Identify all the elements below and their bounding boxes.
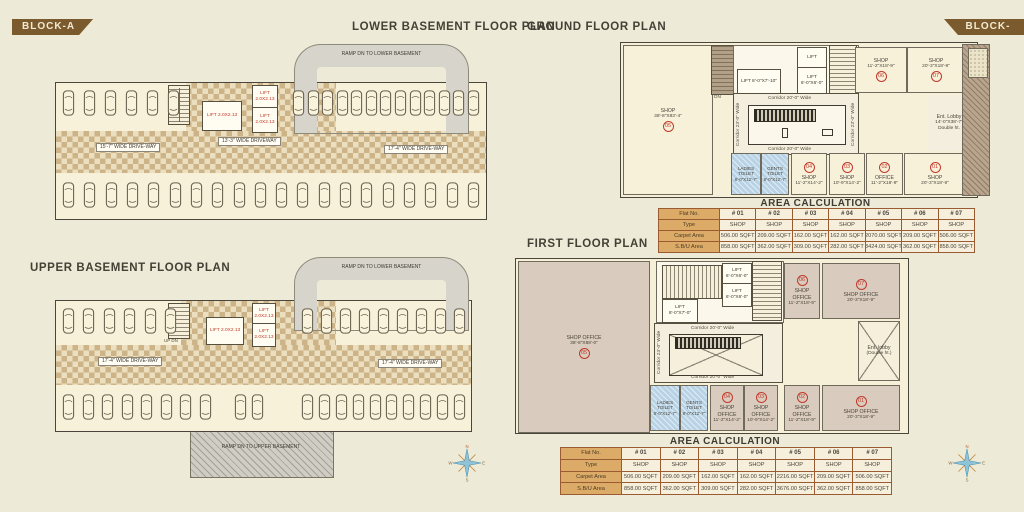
value-cell: 282.00 SQFT: [828, 242, 864, 252]
value-cell: 506.00 SQFT: [719, 231, 755, 241]
value-cell: SHOP: [865, 220, 901, 230]
stair: [711, 45, 735, 95]
value-cell: SHOP: [814, 460, 853, 471]
car-icon: [123, 305, 136, 337]
car-icon: [402, 391, 415, 423]
row-label-cell: Flat No.: [561, 448, 621, 459]
car-icon: [275, 179, 288, 211]
area-table-row: Flat No.# 01# 02# 03# 04# 05# 06# 07: [561, 448, 891, 459]
car-icon: [467, 87, 480, 119]
value-cell: SHOP: [938, 220, 974, 230]
first-shop-office-03: 03 SHOP OFFICE 10'-9"X14'-2": [744, 385, 778, 431]
car-icon: [424, 179, 437, 211]
first-shop-office-05: SHOP OFFICE 38'-8"X88'-0" 05: [518, 261, 650, 433]
car-icon: [234, 391, 247, 423]
value-cell: # 04: [828, 209, 864, 219]
value-cell: 209.00 SQFT: [814, 472, 853, 483]
ramp-label: RAMP DN TO LOWER BASEMENT: [295, 51, 468, 57]
ramp-label: RAMP DN TO UPPER BASEMENT: [190, 444, 332, 450]
value-cell: # 07: [938, 209, 974, 219]
value-cell: SHOP: [755, 220, 791, 230]
lift: LIFT 8'-0"X7'-10": [737, 69, 781, 95]
value-cell: # 01: [621, 448, 660, 459]
value-cell: SHOP: [852, 460, 891, 471]
car-icon: [409, 87, 422, 119]
floor-plan-sheet: BLOCK-A BLOCK-A LOWER BASEMENT FLOOR PLA…: [0, 0, 1024, 512]
car-icon: [104, 87, 117, 119]
lift: LIFT 2.0X2.13: [206, 317, 244, 345]
car-icon: [140, 391, 153, 423]
stair: [662, 265, 722, 299]
ground-floor-title: GROUND FLOOR PLAN: [527, 21, 666, 33]
value-cell: # 05: [775, 448, 814, 459]
block-a-badge-left: BLOCK-A: [12, 19, 93, 35]
car-icon: [365, 87, 378, 119]
value-cell: # 01: [719, 209, 755, 219]
compass-e: E: [982, 461, 985, 466]
first-gents-toilet: GENTS TOILET 8'-0"X12'-7": [680, 385, 708, 431]
car-icon: [169, 179, 182, 211]
compass-w: W: [948, 461, 953, 466]
upper-basement-title: UPPER BASEMENT FLOOR PLAN: [30, 262, 230, 274]
value-cell: # 04: [737, 448, 776, 459]
row-label-cell: S.B/U Area: [659, 242, 719, 252]
car-icon: [126, 179, 139, 211]
first-shop-office-01: 01 SHOP OFFICE 20'-3"X18'-9": [822, 385, 900, 431]
value-cell: 2216.00 SQFT: [775, 472, 814, 483]
value-cell: 209.00 SQFT: [660, 472, 699, 483]
row-label-cell: Type: [659, 220, 719, 230]
car-icon: [352, 391, 365, 423]
row-label-cell: S.B/U Area: [561, 483, 621, 494]
car-icon: [301, 391, 314, 423]
car-icon: [318, 391, 331, 423]
compass-rose: N E S W: [948, 444, 986, 482]
value-cell: 162.00 SQFT: [828, 231, 864, 241]
driveway-label: 17'-4" WIDE DRIVE-WAY: [384, 145, 448, 154]
car-icon: [146, 87, 159, 119]
stair-label: UP DN: [164, 338, 178, 343]
car-icon: [164, 305, 177, 337]
car-icon: [403, 179, 416, 211]
row-label-cell: Flat No.: [659, 209, 719, 219]
value-cell: 282.00 SQFT: [737, 483, 776, 494]
first-area-table: Flat No.# 01# 02# 03# 04# 05# 06# 07Type…: [560, 447, 892, 495]
value-cell: 858.00 SQFT: [621, 483, 660, 494]
value-cell: 162.00 SQFT: [792, 231, 828, 241]
car-icon: [101, 391, 114, 423]
compass-n: N: [965, 444, 968, 449]
ground-office-02: 02 OFFICE 11'-2"X18'-9": [866, 153, 903, 195]
car-icon: [415, 305, 428, 337]
compass-w: W: [448, 461, 453, 466]
value-cell: # 03: [792, 209, 828, 219]
value-cell: # 07: [852, 448, 891, 459]
compass-e: E: [482, 461, 485, 466]
value-cell: SHOP: [621, 460, 660, 471]
lower-basement-plan: LIFT 2.0X2.13 LIFT 2.0X2.13 LIFT 2.0X2.1…: [55, 82, 487, 220]
car-icon: [335, 391, 348, 423]
compass-s: S: [466, 478, 469, 482]
driveway-label: 13'-3" WIDE DRIVEWAY: [218, 137, 281, 146]
row-label-cell: Carpet Area: [659, 231, 719, 241]
landscape-patch: [968, 48, 988, 78]
lift: LIFT 2.0X2.13: [252, 107, 278, 133]
value-cell: 858.00 SQFT: [719, 242, 755, 252]
first-shop-office-06: 06 SHOP OFFICE 11'-2"X18'-9": [784, 263, 820, 319]
parking-row: [62, 305, 177, 337]
corridor-block: Corridor 20'-0" Wide Corridor 20'-0" Wid…: [654, 323, 783, 383]
parking-row: [234, 391, 264, 423]
area-table-row: TypeSHOPSHOPSHOPSHOPSHOPSHOPSHOP: [659, 219, 974, 230]
value-cell: 506.00 SQFT: [938, 231, 974, 241]
first-ent-lobby: Ent. lobby (Double ht.): [858, 321, 900, 381]
car-icon: [62, 179, 75, 211]
car-icon: [379, 87, 392, 119]
value-cell: 3676.00 SQFT: [775, 483, 814, 494]
value-cell: 858.00 SQFT: [938, 242, 974, 252]
car-icon: [377, 305, 390, 337]
row-label-cell: Carpet Area: [561, 472, 621, 483]
value-cell: 362.00 SQFT: [660, 483, 699, 494]
ground-floor-plan: SHOP 38'-8"X83'-4" 05 DN LIFT 8'-0"X7'-1…: [620, 42, 978, 198]
corridor-block: Corridor 20'-0" Wide Corridor 20'-0" Wid…: [733, 93, 859, 155]
car-icon: [434, 305, 447, 337]
car-icon: [83, 179, 96, 211]
value-cell: 858.00 SQFT: [852, 483, 891, 494]
lift: LIFT 2.0X2.13: [252, 85, 278, 109]
value-cell: # 06: [814, 448, 853, 459]
car-icon: [453, 391, 466, 423]
area-table-row: S.B/U Area858.00 SQFT362.00 SQFT309.00 S…: [659, 241, 974, 252]
ground-shop-06: SHOP 11'-2"X18'-9" 06: [855, 47, 907, 93]
car-icon: [83, 87, 96, 119]
value-cell: # 02: [660, 448, 699, 459]
escalator: [675, 337, 741, 349]
dn-label: DN: [714, 95, 721, 100]
value-cell: 506.00 SQFT: [621, 472, 660, 483]
value-cell: SHOP: [792, 220, 828, 230]
ground-shop-01: 01 SHOP 20'-3"X18'-9": [904, 153, 966, 195]
area-calculation-title: AREA CALCULATION: [560, 436, 890, 447]
car-icon: [254, 179, 267, 211]
first-shop-office-07: 07 SHOP OFFICE 20'-3"X18'-9": [822, 263, 900, 319]
car-icon: [199, 391, 212, 423]
driveway-label: 17'-4" WIDE DRIVE-WAY: [98, 357, 162, 366]
car-icon: [190, 179, 203, 211]
car-icon: [339, 179, 352, 211]
first-shop-office-02: 02 SHOP OFFICE 11'-2"X18'-9": [784, 385, 820, 431]
car-icon: [396, 305, 409, 337]
car-icon: [452, 87, 465, 119]
ground-ladies-toilet: LADIES TOILET 8'-0"X12'-7": [731, 153, 761, 195]
value-cell: # 06: [901, 209, 937, 219]
first-ladies-toilet: LADIES TOILET 8'-0"X12'-7": [650, 385, 680, 431]
car-icon: [211, 179, 224, 211]
car-icon: [385, 391, 398, 423]
first-floor-title: FIRST FLOOR PLAN: [527, 238, 648, 250]
car-icon: [179, 391, 192, 423]
car-icon: [82, 305, 95, 337]
car-icon: [419, 391, 432, 423]
value-cell: 309.00 SQFT: [792, 242, 828, 252]
area-table-row: Carpet Area506.00 SQFT209.00 SQFT162.00 …: [659, 230, 974, 241]
car-icon: [167, 87, 180, 119]
value-cell: 3424.00 SQFT: [865, 242, 901, 252]
car-icon: [233, 179, 246, 211]
ramp-label: RAMP DN TO LOWER BASEMENT: [295, 264, 468, 270]
stair: [829, 45, 857, 95]
area-table-row: TypeSHOPSHOPSHOPSHOPSHOPSHOPSHOP: [561, 459, 891, 471]
car-icon: [292, 87, 305, 119]
lift: LIFT 6'-0"X6'-0": [722, 263, 752, 285]
first-floor-plan: SHOP OFFICE 38'-8"X88'-0" 05 DN UP LIFT …: [515, 258, 909, 434]
car-icon: [318, 179, 331, 211]
car-icon: [382, 179, 395, 211]
car-icon: [360, 179, 373, 211]
row-label-cell: Type: [561, 460, 621, 471]
car-icon: [394, 87, 407, 119]
first-shop-office-04: 04 SHOP OFFICE 11'-2"X14'-2": [710, 385, 744, 431]
car-icon: [436, 391, 449, 423]
ground-shop-07: SHOP 20'-3"X18'-9" 07: [907, 47, 965, 93]
ground-shop-05: SHOP 38'-8"X83'-4" 05: [623, 45, 713, 195]
car-icon: [105, 179, 118, 211]
car-icon: [350, 87, 363, 119]
upper-basement-plan: UP DN LIFT 2.0X2.13 LIFT 2.0X2.13 LIFT 2…: [55, 300, 472, 432]
lift: LIFT: [797, 47, 827, 69]
car-icon: [467, 179, 480, 211]
value-cell: 362.00 SQFT: [755, 242, 791, 252]
ramp-to-upper-basement: [190, 428, 334, 478]
value-cell: 2070.00 SQFT: [865, 231, 901, 241]
stair: [752, 261, 782, 321]
area-table-row: S.B/U Area858.00 SQFT362.00 SQFT309.00 S…: [561, 482, 891, 494]
block-a-badge-right: BLOCK-A: [944, 19, 1024, 35]
value-cell: 309.00 SQFT: [698, 483, 737, 494]
value-cell: # 02: [755, 209, 791, 219]
compass-rose: N E S W: [448, 444, 486, 482]
car-icon: [62, 391, 75, 423]
lift: LIFT 2.0X2.13: [252, 303, 276, 325]
car-icon: [144, 305, 157, 337]
value-cell: 506.00 SQFT: [852, 472, 891, 483]
car-icon: [438, 87, 451, 119]
car-icon: [423, 87, 436, 119]
car-icon: [121, 391, 134, 423]
driveway-label: 15'-7" WIDE DRIVE-WAY: [96, 143, 160, 152]
car-icon: [103, 305, 116, 337]
value-cell: 209.00 SQFT: [901, 231, 937, 241]
lift: LIFT 6'-0"X6'-0": [797, 67, 827, 95]
car-icon: [296, 179, 309, 211]
driveway-label: 17'-4" WIDE DRIVE-WAY: [378, 359, 442, 368]
lift: LIFT 2.0X2.13: [252, 323, 276, 347]
ground-shop-03: 03 SHOP 10'-9"X14'-2": [829, 153, 865, 195]
parking-row: [301, 305, 466, 337]
value-cell: SHOP: [660, 460, 699, 471]
area-table-row: Flat No.# 01# 02# 03# 04# 05# 06# 07: [659, 209, 974, 219]
car-icon: [320, 305, 333, 337]
car-icon: [307, 87, 320, 119]
car-icon: [453, 305, 466, 337]
car-icon: [339, 305, 352, 337]
car-icon: [82, 391, 95, 423]
area-table-row: Carpet Area506.00 SQFT209.00 SQFT162.00 …: [561, 471, 891, 483]
value-cell: SHOP: [828, 220, 864, 230]
car-icon: [336, 87, 349, 119]
value-cell: SHOP: [775, 460, 814, 471]
escalator: [754, 109, 816, 122]
car-icon: [147, 179, 160, 211]
parking-row: [62, 87, 180, 119]
value-cell: 162.00 SQFT: [737, 472, 776, 483]
value-cell: SHOP: [719, 220, 755, 230]
value-cell: 362.00 SQFT: [814, 483, 853, 494]
car-icon: [160, 391, 173, 423]
car-icon: [369, 391, 382, 423]
lift: LIFT 2.0X2.13: [202, 101, 242, 131]
value-cell: # 05: [865, 209, 901, 219]
value-cell: SHOP: [901, 220, 937, 230]
compass-n: N: [465, 444, 468, 449]
lower-basement-title: LOWER BASEMENT FLOOR PLAN: [352, 21, 555, 33]
value-cell: 362.00 SQFT: [901, 242, 937, 252]
car-icon: [358, 305, 371, 337]
car-icon: [446, 179, 459, 211]
car-icon: [301, 305, 314, 337]
car-icon: [321, 87, 334, 119]
ground-gents-toilet: GENTS TOILET 8'-0"X12'-7": [761, 153, 789, 195]
value-cell: 209.00 SQFT: [755, 231, 791, 241]
car-icon: [125, 87, 138, 119]
parking-row: [292, 87, 480, 119]
value-cell: 162.00 SQFT: [698, 472, 737, 483]
parking-row: [301, 391, 466, 423]
compass-s: S: [966, 478, 969, 482]
car-icon: [62, 305, 75, 337]
ground-area-table: Flat No.# 01# 02# 03# 04# 05# 06# 07Type…: [658, 208, 975, 253]
lift: LIFT 6'-0"X6'-0": [722, 283, 752, 307]
value-cell: SHOP: [737, 460, 776, 471]
lift: LIFT 8'-0"X7'-0": [662, 299, 698, 323]
parking-row: [62, 391, 212, 423]
value-cell: # 03: [698, 448, 737, 459]
car-icon: [251, 391, 264, 423]
value-cell: SHOP: [698, 460, 737, 471]
car-icon: [62, 87, 75, 119]
ground-shop-04: 04 SHOP 11'-2"X14'-2": [791, 153, 827, 195]
parking-row: [62, 179, 480, 211]
